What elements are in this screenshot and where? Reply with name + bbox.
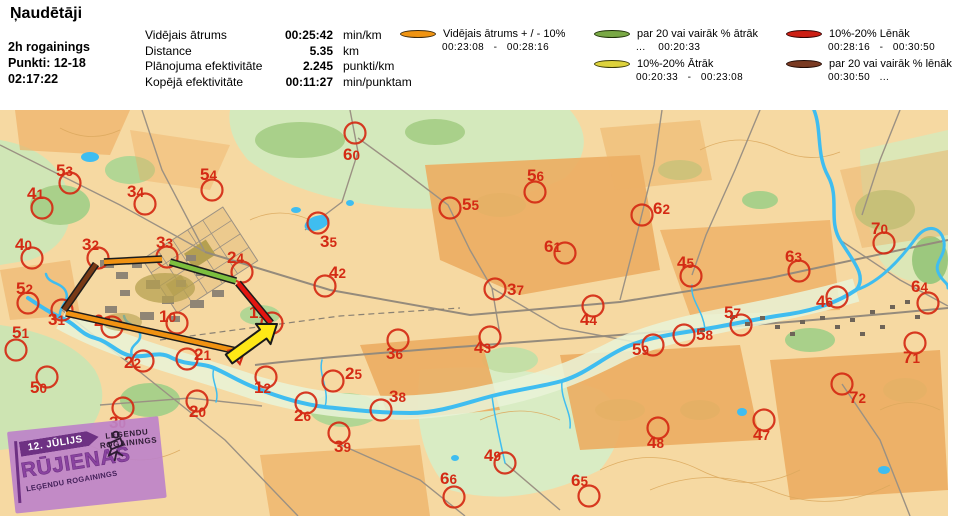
legend-line-fast20 [594,30,630,38]
control-number-33: 33 [156,233,173,252]
total-time: 02:17:22 [8,72,58,86]
control-number-57: 57 [724,303,741,322]
legend-label: par 20 vai vairāk % ātrāk [637,28,758,40]
control-number-62: 62 [653,199,670,218]
stat-label: Plānojuma efektivitāte [145,59,275,75]
stat-row-1: Distance5.35km [145,44,412,60]
control-number-63: 63 [785,247,802,266]
control-number-72: 72 [849,388,866,407]
map-area: 5341345460355556627045636440323324426144… [0,110,948,516]
legend-range: 00:23:08 - 00:28:16 [442,42,565,53]
control-number-48: 48 [647,433,664,452]
control-number-35: 35 [320,232,337,251]
legend-label: 10%-20% Lēnāk [829,28,910,40]
logo-badge: LEĢENDU ROGAININGS [99,427,157,451]
legend-item-slow20: par 20 vai vairāk % lēnāk00:30:50 ... [786,56,952,83]
control-number-65: 65 [571,471,588,490]
legend-item-slow10: 10%-20% Lēnāk00:28:16 - 00:30:50 [786,26,952,53]
control-number-25: 25 [345,364,362,383]
control-number-32: 32 [82,235,99,254]
legend-range: ... 00:20:33 [636,42,758,53]
control-number-37: 37 [507,280,524,299]
runner-icon [99,429,132,466]
legend-column-2: par 20 vai vairāk % ātrāk... 00:20:3310%… [594,26,758,86]
control-number-12: 12 [254,378,271,397]
control-number-66: 66 [440,469,457,488]
legend-range: 00:20:33 - 00:23:08 [636,72,758,83]
control-number-43: 43 [474,338,491,357]
control-number-22: 22 [124,353,141,372]
control-number-10: 10 [159,307,176,326]
stat-unit: min/punktam [343,75,412,91]
legend-item-avg: Vidējais ātrums + / - 10%00:23:08 - 00:2… [400,26,565,53]
control-number-50: 50 [30,378,47,397]
stat-value: 00:25:42 [275,28,333,44]
control-number-49: 49 [484,446,501,465]
event-logo: 12. JŪLIJS RŪJIENAS LEĢENDU ROGAININGS L… [7,416,167,513]
legend-label: Vidējais ātrums + / - 10% [443,28,565,40]
control-number-60: 60 [343,145,360,164]
control-number-58: 58 [696,325,713,344]
control-number-71: 71 [903,348,920,367]
control-number-52: 52 [16,279,33,298]
legend-line-slow20 [786,60,822,68]
control-number-64: 64 [911,277,928,296]
control-number-24: 24 [227,248,244,267]
stat-row-2: Plānojuma efektivitāte2.245punkti/km [145,59,412,75]
stats-table: Vidējais ātrums00:25:42min/kmDistance5.3… [145,28,412,90]
legend-line-slow10 [786,30,822,38]
control-number-54: 54 [200,165,217,184]
legend-item-fast20: par 20 vai vairāk % ātrāk... 00:20:33 [594,26,758,53]
control-number-45: 45 [677,253,694,272]
control-number-34: 34 [127,182,144,201]
control-number-31: 31 [48,310,65,329]
control-number-41: 41 [27,184,44,203]
stat-row-0: Vidējais ātrums00:25:42min/km [145,28,412,44]
control-number-70: 70 [871,219,888,238]
event-info: 2h rogainings Punkti: 12-18 02:17:22 [8,39,90,87]
stat-row-3: Kopējā efektivitāte00:11:27min/punktam [145,75,412,91]
legend-column-3: 10%-20% Lēnāk00:28:16 - 00:30:50par 20 v… [786,26,952,86]
points-info: Punkti: 12-18 [8,56,86,70]
control-number-38: 38 [389,387,406,406]
stat-label: Kopējā efektivitāte [145,75,275,91]
stat-value: 2.245 [275,59,333,75]
legend-line-avg [400,30,436,38]
stat-value: 5.35 [275,44,333,60]
stat-value: 00:11:27 [275,75,333,91]
legend-range: 00:30:50 ... [828,72,952,83]
control-number-44: 44 [580,310,597,329]
legend-label: 10%-20% Ātrāk [637,58,713,70]
page-title: Ņaudētāji [10,5,82,23]
legend-column-1: Vidējais ātrums + / - 10%00:23:08 - 00:2… [400,26,565,56]
stat-unit: min/km [343,28,382,44]
stat-unit: km [343,44,359,60]
control-number-26: 26 [294,406,311,425]
route-analysis-page: { "title": "Ņaudētāji", "info": { "line1… [0,0,968,522]
control-number-51: 51 [12,323,29,342]
control-number-55: 55 [462,195,479,214]
stat-label: Vidējais ātrums [145,28,275,44]
control-number-42: 42 [329,263,346,282]
event-type: 2h rogainings [8,40,90,54]
control-number-56: 56 [527,166,544,185]
legend-item-fast10: 10%-20% Ātrāk00:20:33 - 00:23:08 [594,56,758,83]
stat-label: Distance [145,44,275,60]
control-number-20: 20 [189,402,206,421]
legend-label: par 20 vai vairāk % lēnāk [829,58,952,70]
control-number-47: 47 [753,425,770,444]
control-number-53: 53 [56,161,73,180]
legend-line-fast10 [594,60,630,68]
control-number-59: 59 [632,340,649,359]
control-number-40: 40 [15,235,32,254]
route-segment-32-33 [104,259,162,262]
control-number-39: 39 [334,437,351,456]
legend-range: 00:28:16 - 00:30:50 [828,42,952,53]
control-number-46: 46 [816,292,833,311]
stat-unit: punkti/km [343,59,394,75]
control-number-36: 36 [386,344,403,363]
control-number-61: 61 [544,237,561,256]
